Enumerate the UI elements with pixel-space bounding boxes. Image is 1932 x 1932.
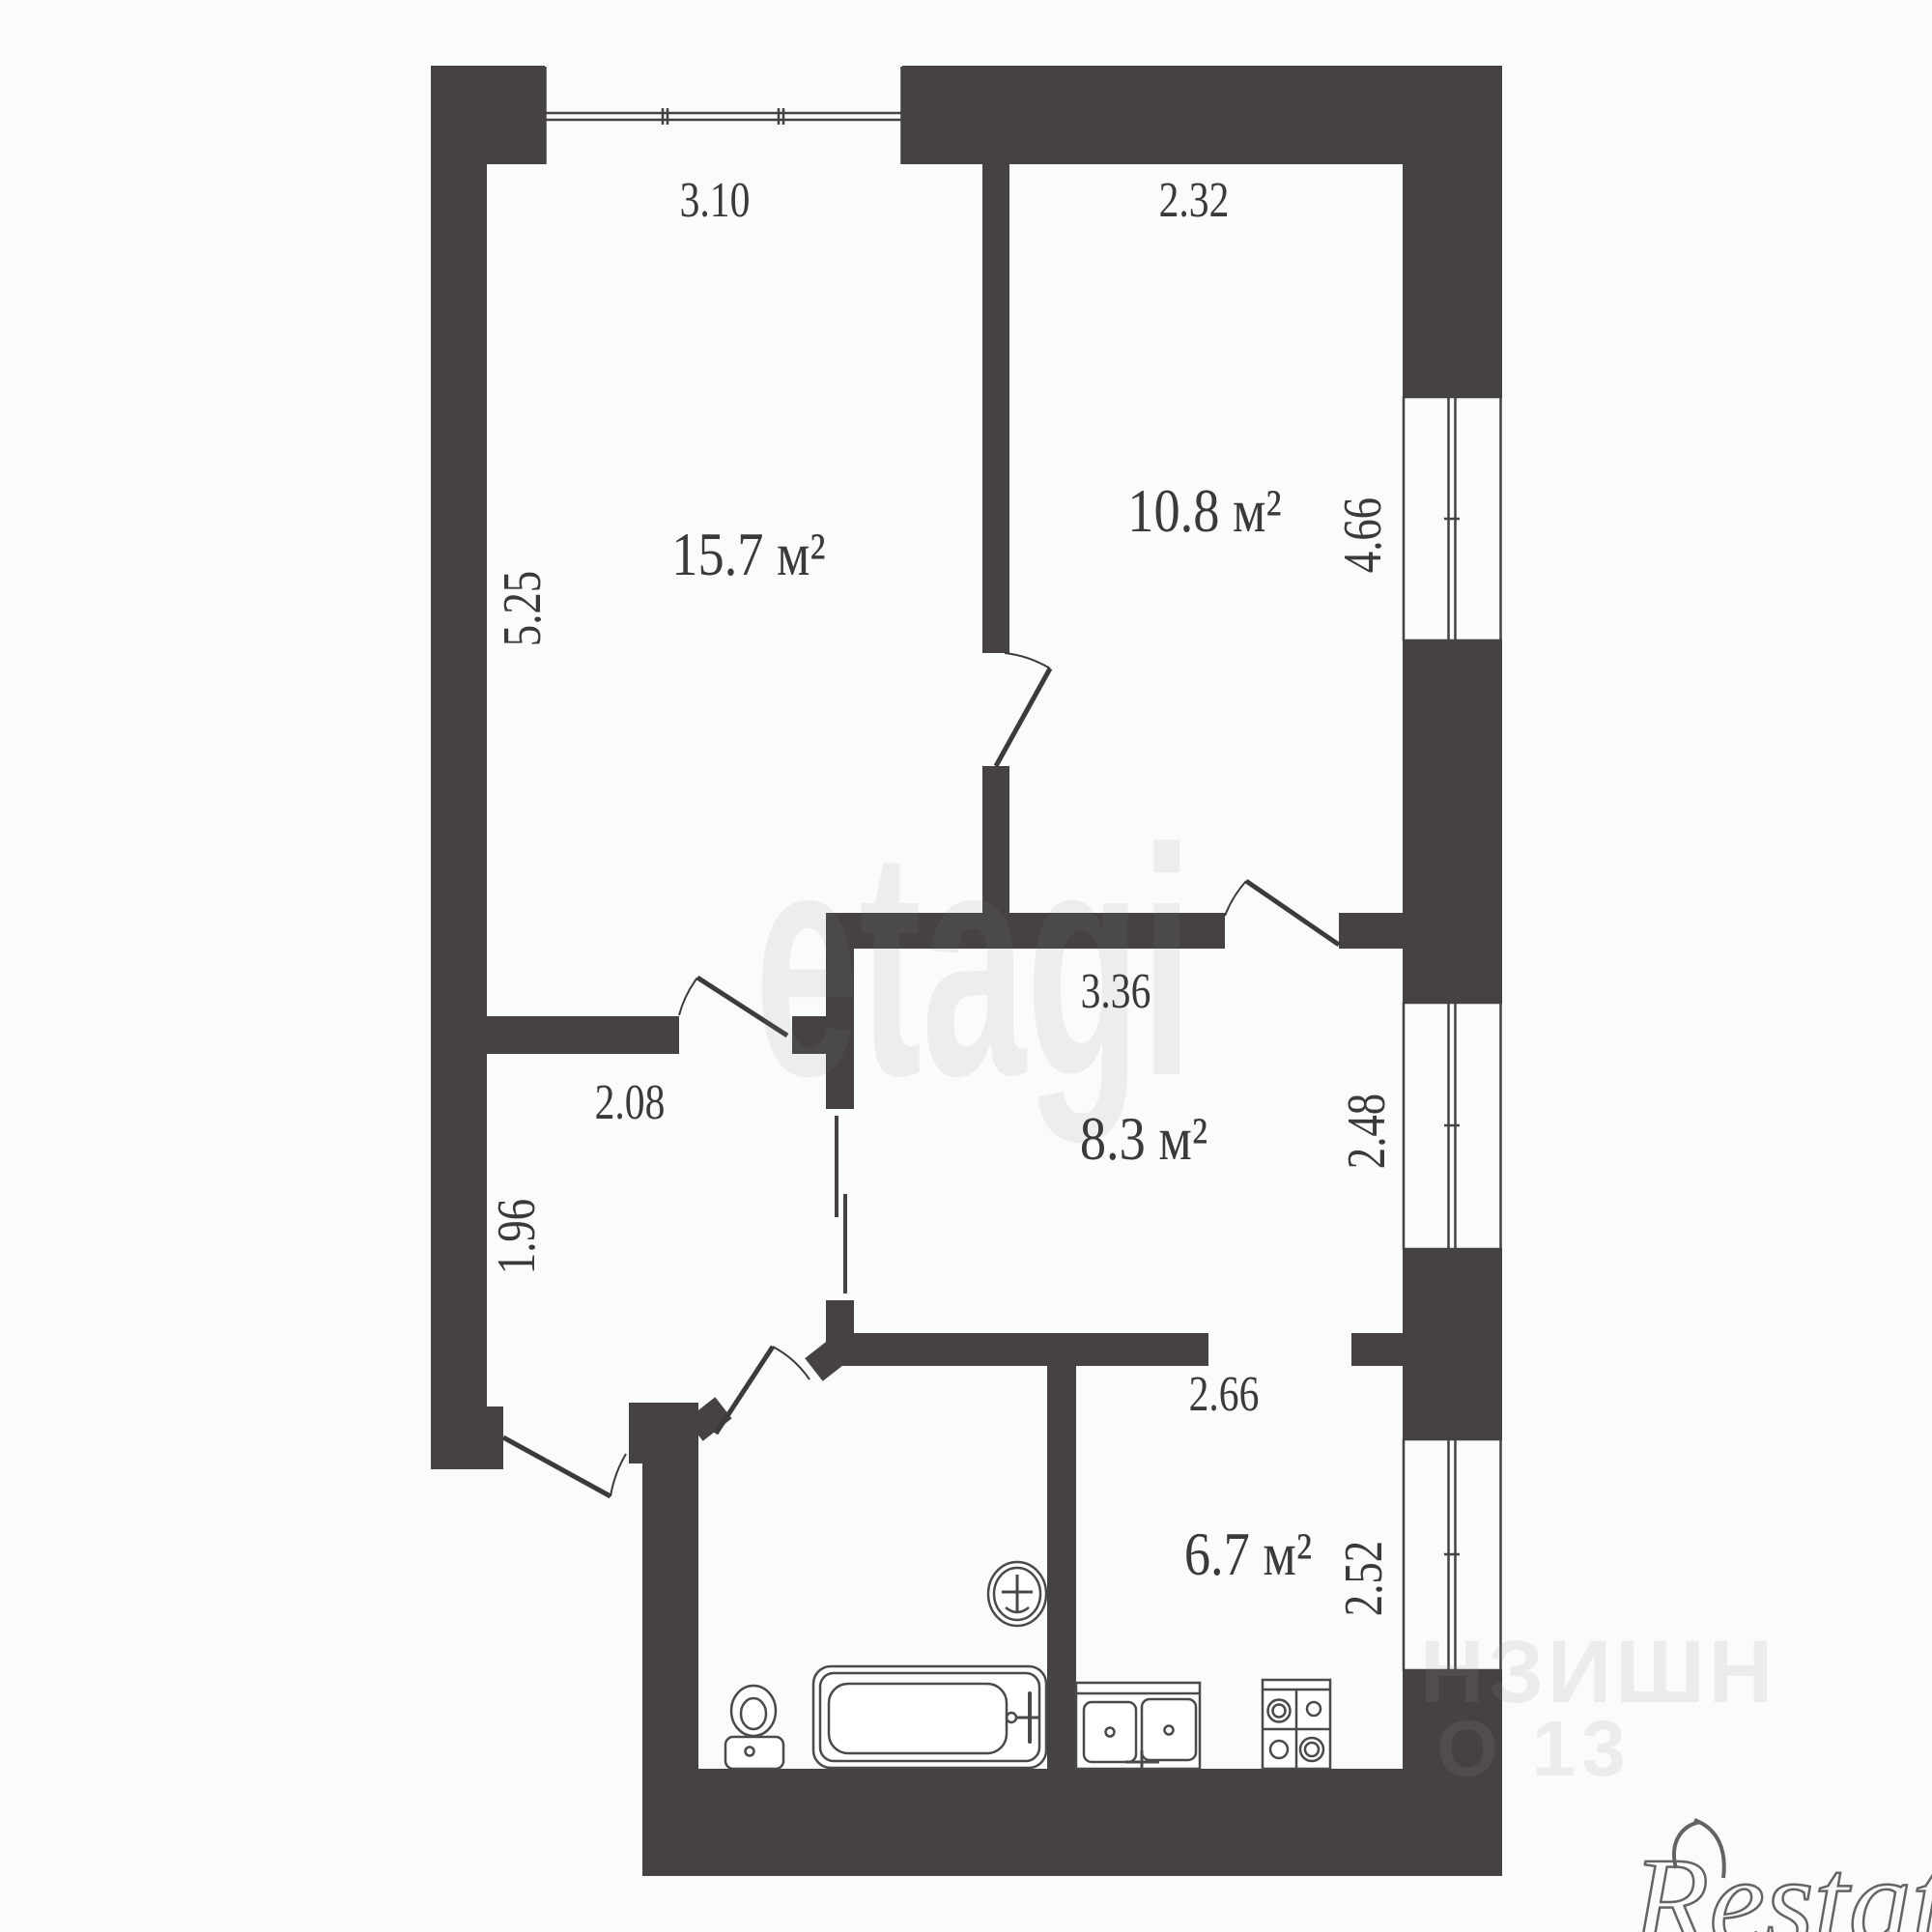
svg-text:3.10: 3.10 — [680, 173, 751, 228]
svg-text:2.66: 2.66 — [1189, 1367, 1260, 1422]
svg-text:8.3 м²: 8.3 м² — [1080, 1104, 1207, 1173]
svg-text:2.52: 2.52 — [1333, 1541, 1393, 1616]
svg-text:10.8 м²: 10.8 м² — [1127, 476, 1281, 545]
svg-text:6.7 м²: 6.7 м² — [1184, 1520, 1312, 1588]
svg-text:15.7 м²: 15.7 м² — [671, 520, 825, 588]
svg-text:О 13: О 13 — [1436, 1705, 1632, 1793]
svg-text:5.25: 5.25 — [492, 571, 552, 646]
svg-text:2.08: 2.08 — [595, 1075, 666, 1130]
svg-text:2.32: 2.32 — [1159, 173, 1230, 228]
svg-text:1.96: 1.96 — [486, 1199, 546, 1274]
svg-text:2.48: 2.48 — [1336, 1094, 1396, 1169]
svg-text:Restate: Restate — [1632, 1833, 1932, 1932]
svg-text:3.36: 3.36 — [1081, 964, 1151, 1019]
svg-text:4.66: 4.66 — [1332, 497, 1392, 573]
